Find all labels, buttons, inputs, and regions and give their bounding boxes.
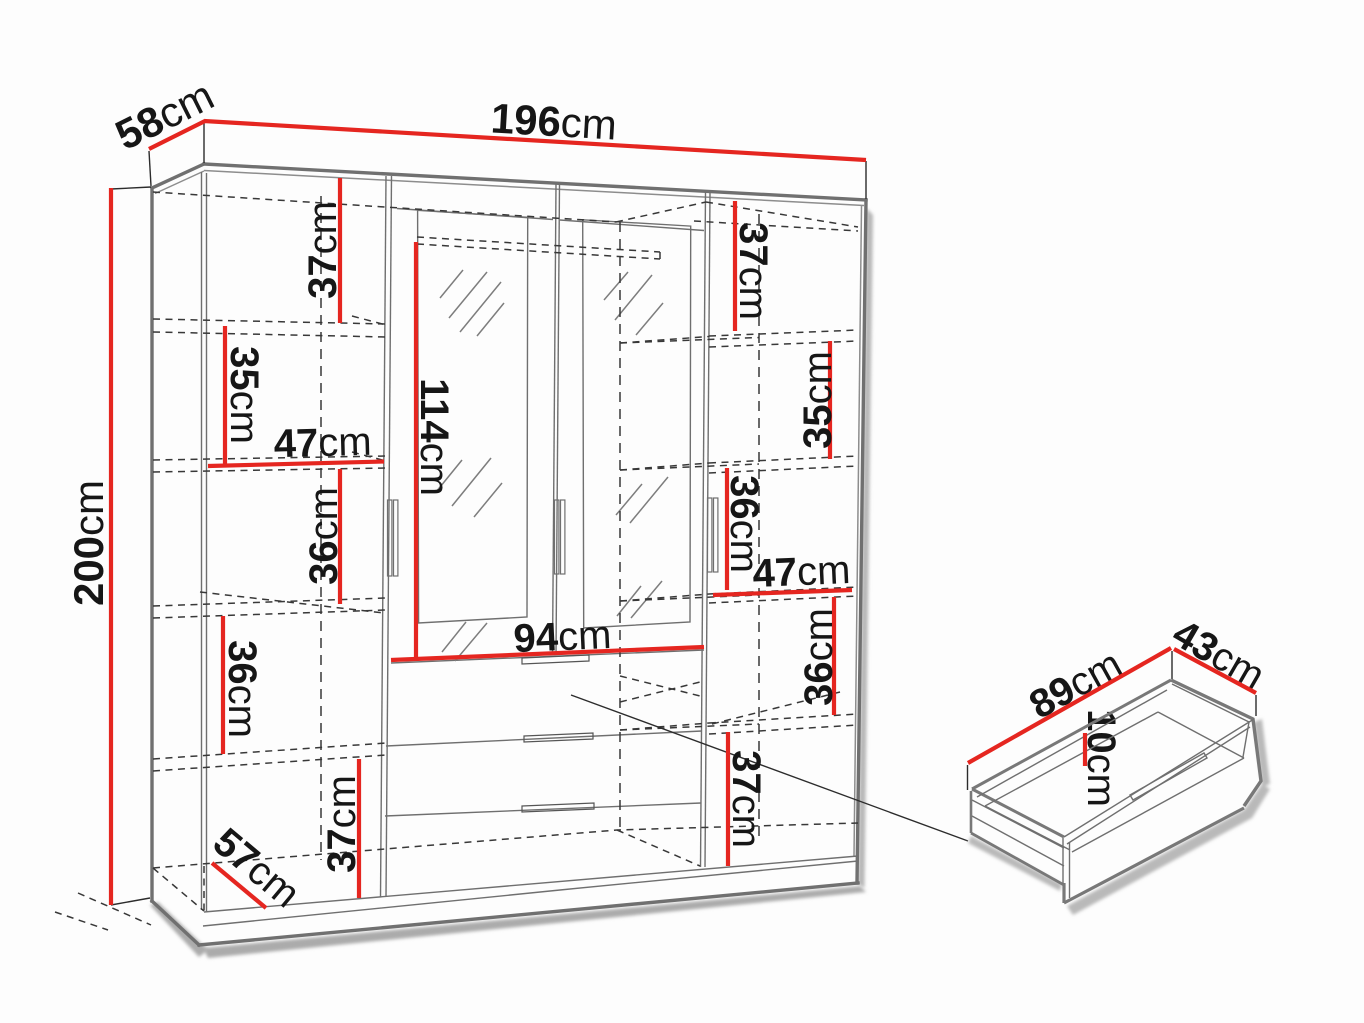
svg-text:36cm: 36cm bbox=[302, 487, 346, 585]
svg-text:196cm: 196cm bbox=[490, 94, 619, 148]
svg-text:36cm: 36cm bbox=[220, 640, 264, 738]
svg-text:37cm: 37cm bbox=[731, 222, 775, 320]
svg-text:94cm: 94cm bbox=[513, 613, 613, 661]
svg-text:37cm: 37cm bbox=[724, 750, 768, 848]
svg-text:114cm: 114cm bbox=[412, 378, 456, 496]
svg-text:36cm: 36cm bbox=[797, 608, 841, 706]
svg-text:200cm: 200cm bbox=[65, 480, 112, 606]
svg-text:37cm: 37cm bbox=[320, 775, 364, 873]
svg-text:35cm: 35cm bbox=[222, 346, 266, 444]
svg-text:37cm: 37cm bbox=[301, 201, 345, 299]
svg-text:35cm: 35cm bbox=[796, 351, 840, 449]
svg-text:47cm: 47cm bbox=[752, 548, 852, 596]
svg-text:47cm: 47cm bbox=[273, 420, 372, 467]
